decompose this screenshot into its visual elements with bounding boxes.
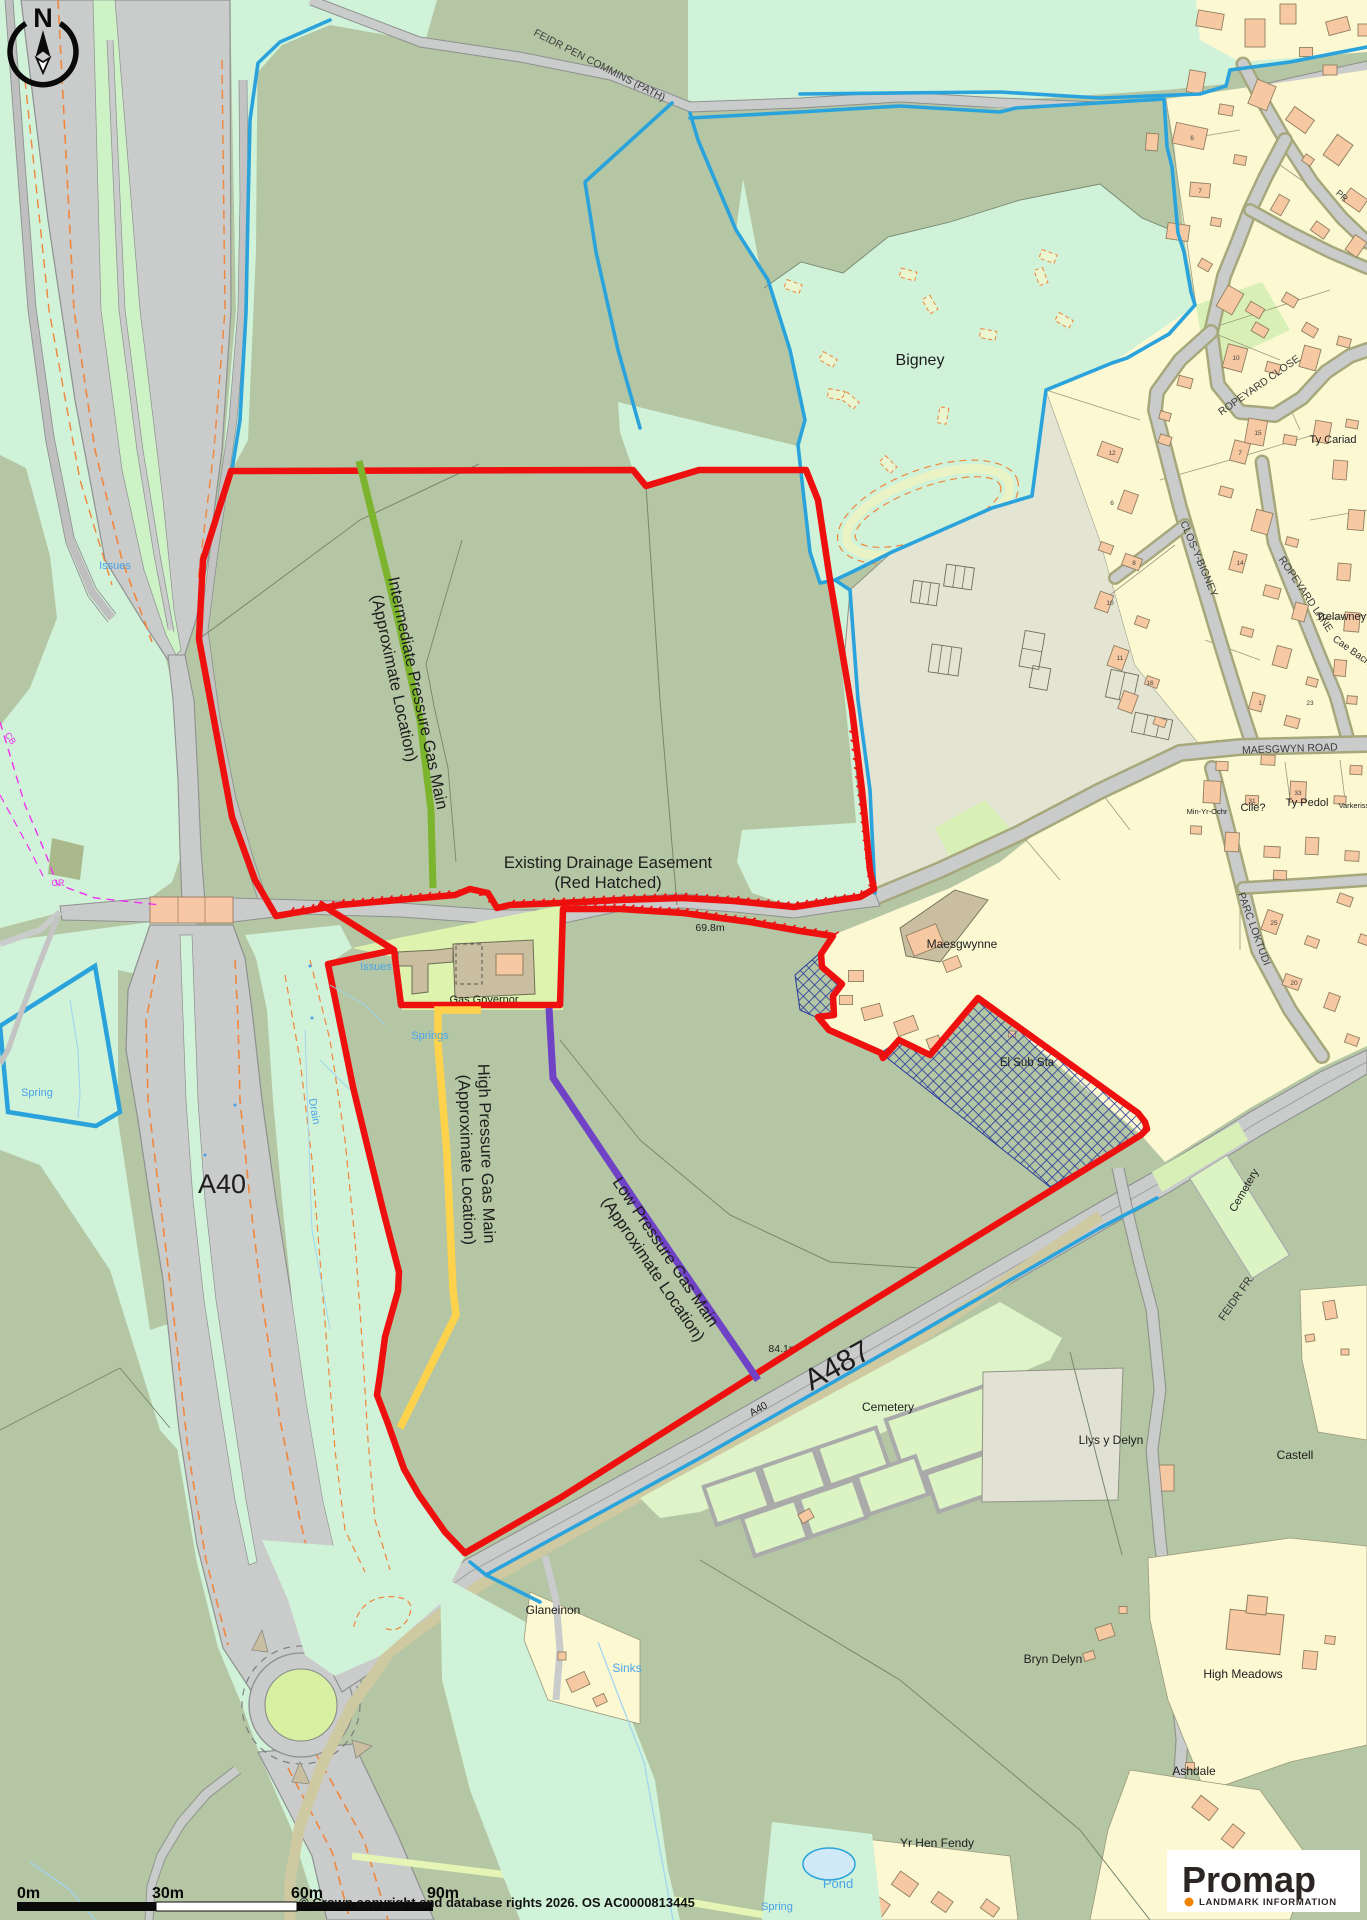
svg-text:Issues: Issues	[360, 961, 392, 973]
svg-text:69.8m: 69.8m	[695, 922, 724, 934]
svg-text:(Red Hatched): (Red Hatched)	[554, 874, 661, 892]
svg-text:6: 6	[1110, 500, 1114, 507]
svg-text:Cile?: Cile?	[1240, 802, 1265, 814]
svg-text:Issues: Issues	[99, 560, 131, 572]
svg-text:7: 7	[1198, 188, 1202, 195]
svg-text:7: 7	[1238, 450, 1242, 457]
svg-text:Spring: Spring	[21, 1087, 53, 1099]
svg-text:CR: CR	[52, 878, 65, 888]
svg-text:Existing Drainage Easement: Existing Drainage Easement	[504, 854, 713, 872]
svg-text:Ashdale: Ashdale	[1172, 1764, 1216, 1778]
svg-text:Yr Hen Fendy: Yr Hen Fendy	[900, 1836, 974, 1850]
svg-text:14: 14	[1236, 560, 1244, 567]
svg-text:Bryn Delyn: Bryn Delyn	[1024, 1652, 1083, 1666]
svg-text:10: 10	[1106, 600, 1114, 607]
svg-text:6: 6	[1190, 135, 1194, 142]
svg-text:Varkerissa: Varkerissa	[1339, 801, 1367, 810]
svg-text:El Sub Sta: El Sub Sta	[1000, 1057, 1055, 1069]
svg-text:1: 1	[1258, 700, 1262, 707]
svg-text:Bigney: Bigney	[896, 352, 945, 369]
svg-text:Pond: Pond	[823, 1876, 853, 1891]
svg-text:16: 16	[1146, 680, 1154, 687]
svg-text:High Meadows: High Meadows	[1203, 1667, 1282, 1681]
svg-text:Springs: Springs	[411, 1030, 449, 1042]
svg-text:30m: 30m	[152, 1885, 184, 1902]
svg-text:Castell: Castell	[1277, 1448, 1314, 1462]
svg-text:23: 23	[1306, 700, 1314, 707]
svg-text:12: 12	[1108, 450, 1116, 457]
svg-text:20: 20	[1290, 980, 1298, 987]
svg-text:Maesgwynne: Maesgwynne	[927, 937, 998, 951]
svg-text:© Crown copyright and database: © Crown copyright and database rights 20…	[299, 1895, 695, 1910]
svg-text:33: 33	[1294, 790, 1302, 797]
svg-text:A40: A40	[198, 1169, 246, 1199]
svg-text:15: 15	[1254, 430, 1262, 437]
svg-text:Sinks: Sinks	[612, 1661, 641, 1675]
svg-text:Ty Cariad: Ty Cariad	[1309, 434, 1356, 446]
svg-text:8: 8	[1132, 560, 1136, 567]
svg-text:25: 25	[1270, 920, 1278, 927]
svg-text:Min-Yr-Ochr: Min-Yr-Ochr	[1187, 807, 1228, 816]
svg-text:Ty Pedol: Ty Pedol	[1286, 797, 1329, 809]
svg-text:Spring: Spring	[761, 1901, 793, 1913]
svg-text:11: 11	[1117, 655, 1124, 662]
svg-text:Cemetery: Cemetery	[862, 1400, 914, 1414]
svg-text:10: 10	[1232, 355, 1240, 362]
svg-text:LANDMARK INFORMATION: LANDMARK INFORMATION	[1199, 1897, 1337, 1908]
svg-text:0m: 0m	[17, 1885, 40, 1902]
svg-text:Trelawney: Trelawney	[1316, 611, 1367, 623]
svg-text:Glaneinon: Glaneinon	[526, 1603, 581, 1617]
svg-text:Llys y Delyn: Llys y Delyn	[1079, 1433, 1144, 1447]
svg-text:N: N	[33, 3, 53, 33]
svg-text:Promap: Promap	[1182, 1859, 1316, 1900]
